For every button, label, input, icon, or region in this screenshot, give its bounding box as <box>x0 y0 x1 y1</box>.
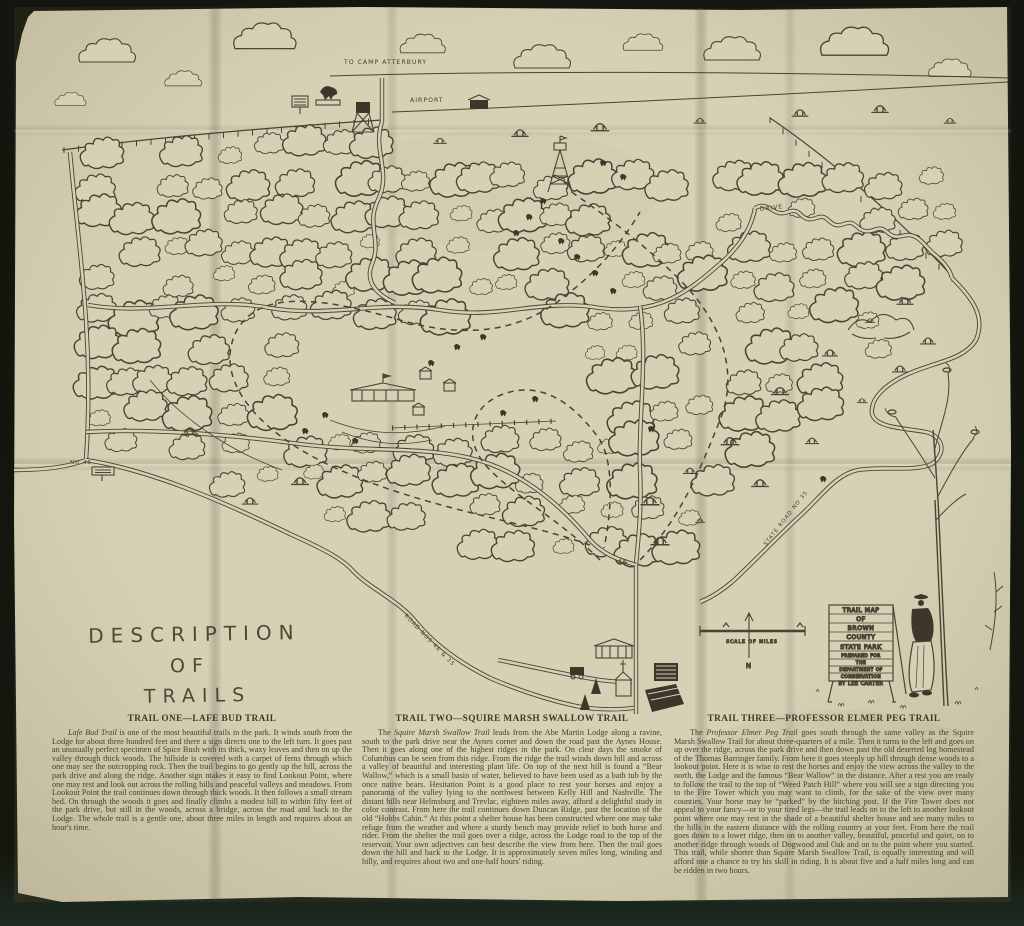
svg-text:OF: OF <box>856 616 865 623</box>
svg-text:DEPARTMENT OF: DEPARTMENT OF <box>839 667 882 673</box>
trail-three-body: The Professor Elmer Peg Trail goes south… <box>674 729 974 875</box>
scanned-trail-map-page: SCALE OF MILES N TRAIL MAP OF BROWN COUN… <box>0 0 1024 926</box>
camp-atterbury-label: TO CAMP ATTERBURY <box>343 59 427 66</box>
trail-two-description: TRAIL TWO—SQUIRE MARSH SWALLOW TRAIL The… <box>362 714 662 867</box>
svg-text:COUNTY: COUNTY <box>847 634 876 641</box>
airport-label: AIRPORT <box>410 97 444 104</box>
svg-text:BROWN: BROWN <box>848 625 875 632</box>
svg-text:OF: OF <box>170 655 210 678</box>
svg-text:DESCRIPTION: DESCRIPTION <box>88 620 301 648</box>
north-label: N <box>746 662 752 670</box>
svg-text:PREPARED FOR: PREPARED FOR <box>841 653 880 659</box>
trail-two-heading: TRAIL TWO—SQUIRE MARSH SWALLOW TRAIL <box>362 714 662 724</box>
scale-label: SCALE OF MILES <box>726 639 778 645</box>
trail-three-description: TRAIL THREE—PROFESSOR ELMER PEG TRAIL Th… <box>674 714 974 875</box>
svg-text:THE: THE <box>855 660 866 666</box>
svg-text:TRAIL MAP: TRAIL MAP <box>841 607 879 614</box>
svg-text:STATE PARK: STATE PARK <box>840 644 882 651</box>
trail-three-heading: TRAIL THREE—PROFESSOR ELMER PEG TRAIL <box>674 714 974 724</box>
trail-one-heading: TRAIL ONE—LAFE BUD TRAIL <box>52 714 352 724</box>
svg-text:BY LEE CARTER: BY LEE CARTER <box>839 681 884 687</box>
no46-label: NO 46 <box>70 460 92 466</box>
trail-two-body: The Squire Marsh Swallow Trail leads fro… <box>362 729 662 867</box>
svg-text:CONSERVATION: CONSERVATION <box>841 674 881 680</box>
trail-one-body: Lafe Bud Trail is one of the most beauti… <box>52 729 352 832</box>
svg-text:TRAILS: TRAILS <box>143 684 252 708</box>
trail-one-description: TRAIL ONE—LAFE BUD TRAIL Lafe Bud Trail … <box>52 714 352 832</box>
